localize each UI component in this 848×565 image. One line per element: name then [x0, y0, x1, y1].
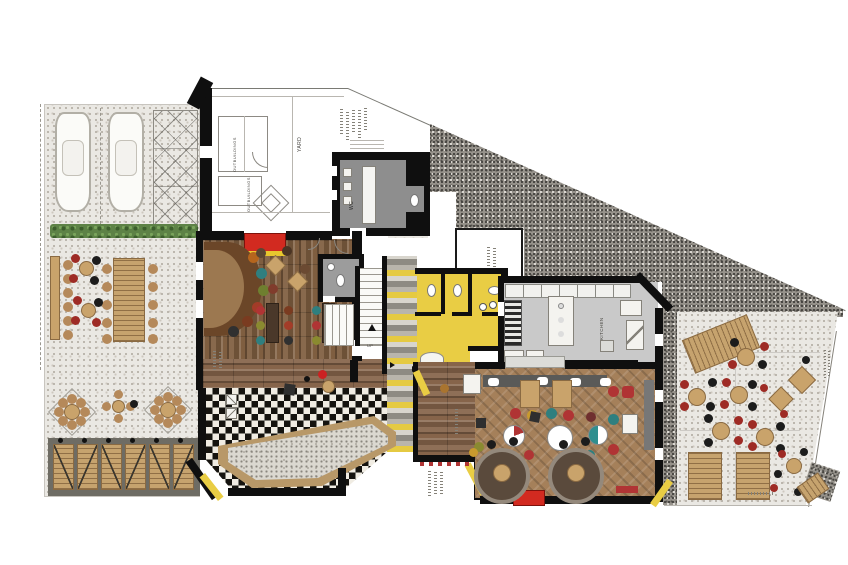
dark-table — [529, 411, 541, 423]
kitchen-top-wall — [498, 276, 644, 283]
yard-label: YARD — [298, 142, 313, 160]
car-1-roof — [62, 140, 84, 176]
deck-panel — [149, 444, 170, 490]
annotation-marks — [824, 348, 826, 378]
outbuildings-text-1: OUTBUILDINGS — [233, 137, 237, 172]
annotation-marks — [358, 110, 361, 138]
accessible-wc-door — [323, 296, 335, 302]
kitchen-pass-shelf — [505, 356, 565, 368]
terrace-grid-line — [680, 430, 800, 431]
round-table — [547, 425, 573, 451]
pallet-platform — [688, 452, 722, 500]
annotation-marks — [352, 108, 355, 132]
yard-line-v — [292, 96, 293, 212]
bar-window — [196, 300, 203, 318]
island-burners — [558, 303, 564, 309]
annotation-marks — [364, 108, 367, 130]
utility-fixture — [343, 168, 352, 177]
terrace-table-chairs — [722, 378, 731, 387]
dishwasher — [226, 394, 237, 405]
terrace-bottom-line — [664, 505, 812, 506]
annotation-marks — [428, 470, 431, 496]
car-2-roof — [115, 140, 137, 176]
basin — [489, 301, 497, 309]
kitchen-shelving — [504, 300, 522, 346]
kitchen-unit — [626, 320, 644, 350]
booth-chairs — [510, 408, 521, 419]
booth-round-table — [567, 464, 585, 482]
deck-panel — [125, 444, 146, 490]
yard-text: YARD — [298, 137, 303, 152]
outbuildings-text-2: OUTBUILDINGS — [247, 177, 251, 212]
red-dash-row — [420, 462, 472, 466]
banquette-bench — [644, 380, 654, 450]
terrace-bench — [50, 256, 60, 340]
booth-seat — [600, 378, 611, 386]
kitchen-label: KITCHEN — [600, 330, 623, 348]
bird-decal — [440, 384, 449, 393]
annotation-marks — [828, 350, 830, 376]
flow-arrow — [390, 362, 395, 368]
wc-block-top-wall — [415, 268, 507, 274]
deck-panel — [101, 444, 122, 490]
wc-partition-h — [415, 312, 441, 316]
dining-top-wall-right — [565, 362, 657, 369]
kitchen-unit — [620, 300, 642, 316]
cross-table-small-seats — [114, 390, 123, 399]
waiter-station — [463, 374, 481, 394]
terrace-table-chairs — [748, 420, 757, 429]
dining-window — [655, 390, 663, 402]
hedge-planter — [50, 224, 198, 238]
black-stool — [130, 400, 138, 408]
dishwasher — [226, 408, 237, 419]
deck-panel — [77, 444, 98, 490]
checker-left-wall — [198, 388, 206, 460]
booth-seat — [488, 378, 499, 386]
yard-top-line — [212, 96, 344, 97]
booth-table — [552, 380, 572, 408]
annotation-marks — [440, 470, 443, 494]
tilted-table-chairs — [256, 248, 266, 258]
dining-loose-chairs — [524, 450, 534, 460]
round-table — [322, 380, 335, 393]
annotation-marks — [455, 408, 458, 434]
entry-step — [350, 144, 384, 145]
dark-gravel-band — [663, 312, 677, 505]
diamond-table-chairs — [760, 384, 768, 392]
annotation-marks — [346, 110, 349, 140]
high-table — [266, 303, 279, 343]
long-communal-table — [113, 258, 145, 342]
booth-table — [520, 380, 540, 408]
basin — [327, 263, 335, 271]
parking-stall-line — [100, 108, 101, 224]
toilet — [427, 284, 436, 297]
red-chair-square — [622, 386, 634, 398]
cross-table — [64, 404, 80, 420]
round-table-teal-half — [588, 425, 608, 445]
stair-flight-lower — [324, 304, 354, 346]
terrace-table — [730, 386, 748, 404]
annotation-marks — [219, 352, 222, 368]
terrace-table-chairs — [730, 338, 739, 347]
toilet — [453, 284, 462, 297]
terrace-table-chairs — [778, 450, 786, 458]
terrace-table-chairs — [71, 254, 80, 263]
deck-posts — [58, 438, 63, 443]
toilet — [410, 194, 419, 207]
terrace-table-chairs — [680, 380, 689, 389]
banquette-table — [622, 414, 638, 434]
cross-table — [160, 402, 176, 418]
terrace-table — [756, 428, 774, 446]
yard-west-wall — [200, 88, 212, 238]
site-boundary-top — [212, 88, 348, 89]
basin — [479, 303, 487, 311]
banquette-chairs — [608, 386, 619, 397]
entry-step — [350, 140, 384, 141]
dining-sw-wall — [413, 455, 481, 462]
hatched-no-parking-zone — [153, 110, 198, 226]
terrace-table-chairs — [73, 296, 82, 305]
annotation-marks — [340, 108, 343, 134]
terrace-table — [81, 303, 96, 318]
high-table-stools — [312, 306, 321, 315]
checker-bottom-wall — [228, 488, 344, 496]
site-boundary-dashed — [40, 104, 41, 370]
wc-partition — [468, 272, 472, 314]
dark-table — [283, 383, 295, 395]
dark-table — [476, 418, 486, 428]
annotation-marks — [213, 350, 216, 370]
deck-panel — [53, 444, 74, 490]
annotation-marks — [434, 472, 437, 494]
utility-window — [332, 166, 337, 176]
annotation-marks — [748, 492, 774, 495]
red-stool — [318, 370, 327, 379]
kitchen-text: KITCHEN — [600, 317, 605, 340]
booth-round-table — [493, 464, 511, 482]
entry-step — [350, 148, 384, 149]
dining-top-wall-left — [475, 362, 505, 369]
round-table-red-wedge — [503, 425, 525, 447]
annotation-marks — [493, 247, 496, 267]
wall-stub — [350, 360, 358, 382]
up-arrow-icon — [368, 324, 376, 331]
wc-partition — [441, 272, 445, 314]
utility-fixture — [343, 182, 352, 191]
wc-text: WC — [350, 201, 355, 210]
wc-partition-h — [452, 312, 472, 316]
dining-window — [655, 448, 663, 460]
high-table-stools — [256, 306, 265, 315]
communal-table-stools-left — [102, 264, 112, 274]
terrace-table — [737, 348, 755, 366]
toilet — [336, 274, 345, 287]
terrace-table-small — [786, 458, 802, 474]
stair-newel — [355, 266, 360, 346]
wc-label: WC — [350, 200, 359, 218]
up-label: UP — [367, 334, 373, 352]
communal-table-stools-right — [148, 264, 158, 274]
cross-table-seats — [67, 394, 77, 404]
terrace-table — [688, 388, 706, 406]
dining-window — [655, 334, 663, 346]
terrace-table-chairs — [704, 414, 713, 423]
red-bench — [616, 486, 638, 493]
terrace-table — [79, 261, 94, 276]
checker-right-stub — [338, 468, 346, 496]
yard-wall-gate — [200, 146, 212, 158]
utility-window — [332, 190, 337, 200]
up-text: UP — [367, 343, 373, 348]
bar-window — [196, 262, 203, 280]
annotation-marks — [487, 245, 490, 269]
cross-table-seats — [163, 392, 173, 402]
cross-table-small — [112, 400, 125, 413]
utility-worktop — [362, 166, 376, 224]
bar-top-wall-left — [196, 231, 244, 240]
black-stool — [304, 376, 310, 382]
booth-facing-chairs — [487, 440, 496, 449]
yard-line-h — [212, 212, 330, 213]
terrace-table — [712, 422, 730, 440]
floor-plan-canvas: OUTBUILDINGS OUTBUILDINGS YARD WC — [0, 0, 848, 565]
